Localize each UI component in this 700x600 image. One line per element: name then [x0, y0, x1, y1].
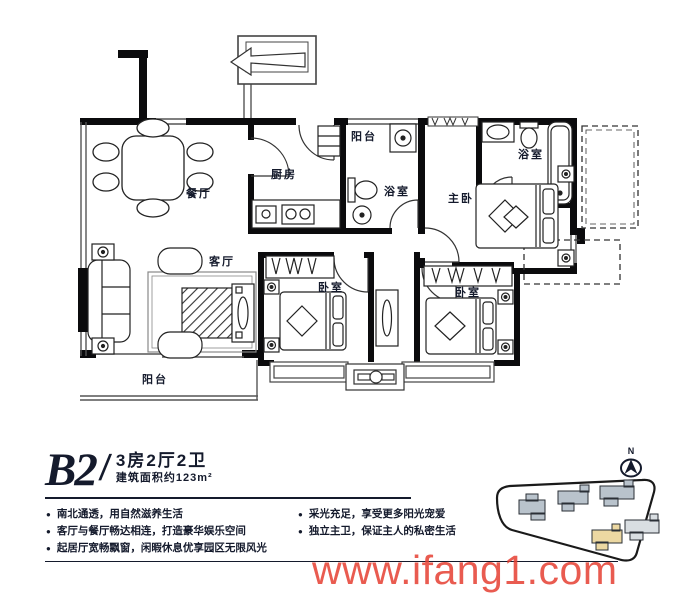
- floorplan-page: { "unit": { "code": "B2", "slash": "/", …: [0, 0, 700, 600]
- label-master-bedroom: 主卧: [448, 191, 474, 205]
- label-bath-master: 浴室: [518, 147, 544, 161]
- entry-porch: [231, 36, 316, 84]
- label-balcony-top: 阳台: [351, 129, 377, 143]
- bathroom-shared-fixtures: [348, 178, 377, 224]
- north-compass-icon: N: [621, 446, 641, 477]
- label-balcony-main: 阳台: [142, 372, 168, 386]
- floor-plan-drawing: 餐厅 厨房 阳台 浴室 浴室 主卧 客厅 卧室 卧室 阳台: [0, 0, 700, 450]
- label-bedroom-b: 卧室: [455, 285, 481, 299]
- watermark-text: www.ifang1.com: [312, 547, 618, 594]
- label-bath-shared: 浴室: [384, 184, 410, 198]
- ac-platform: [346, 364, 404, 390]
- dining-set: [93, 119, 213, 217]
- master-window: [428, 117, 478, 126]
- label-living: 客厅: [208, 254, 235, 268]
- bedroom-b-furniture: [424, 266, 513, 354]
- label-bedroom-a: 卧室: [318, 280, 344, 294]
- bedroom-a-furniture: [264, 256, 346, 352]
- label-dining: 餐厅: [185, 186, 212, 200]
- label-kitchen: 厨房: [271, 167, 297, 181]
- washing-machine: [390, 124, 416, 152]
- master-bed: [476, 166, 574, 266]
- compass-n-label: N: [628, 446, 635, 456]
- corridor-cabinet: [376, 290, 398, 346]
